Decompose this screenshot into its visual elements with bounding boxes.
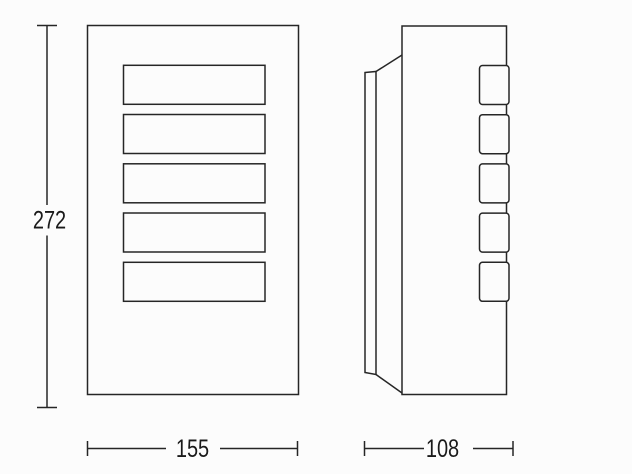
height-dimension: 272 xyxy=(33,26,66,408)
louver-slat xyxy=(124,262,266,301)
depth-dimension-label: 108 xyxy=(426,435,459,463)
louver-slat-side xyxy=(480,115,510,154)
taper-edge-bottom xyxy=(376,375,402,394)
height-dimension-label: 272 xyxy=(33,206,66,234)
technical-drawing: 272 155 108 xyxy=(0,0,632,474)
width-dimension-label: 155 xyxy=(176,435,209,463)
louver-slat-side xyxy=(480,262,510,301)
side-view xyxy=(365,26,509,395)
taper-edge-top xyxy=(376,55,402,72)
louver-slat xyxy=(124,213,266,252)
depth-dimension: 108 xyxy=(365,435,514,463)
louver-slat xyxy=(124,65,266,104)
width-dimension: 155 xyxy=(88,435,298,463)
louver-slat-side xyxy=(480,164,510,203)
louver-slat-side xyxy=(480,213,510,252)
wall-plate xyxy=(365,72,376,375)
louver-slat xyxy=(124,164,266,203)
drawing-canvas: 272 155 108 xyxy=(0,0,632,474)
louver-slat xyxy=(124,115,266,154)
louver-slat-side xyxy=(480,66,510,105)
front-view xyxy=(88,26,299,395)
